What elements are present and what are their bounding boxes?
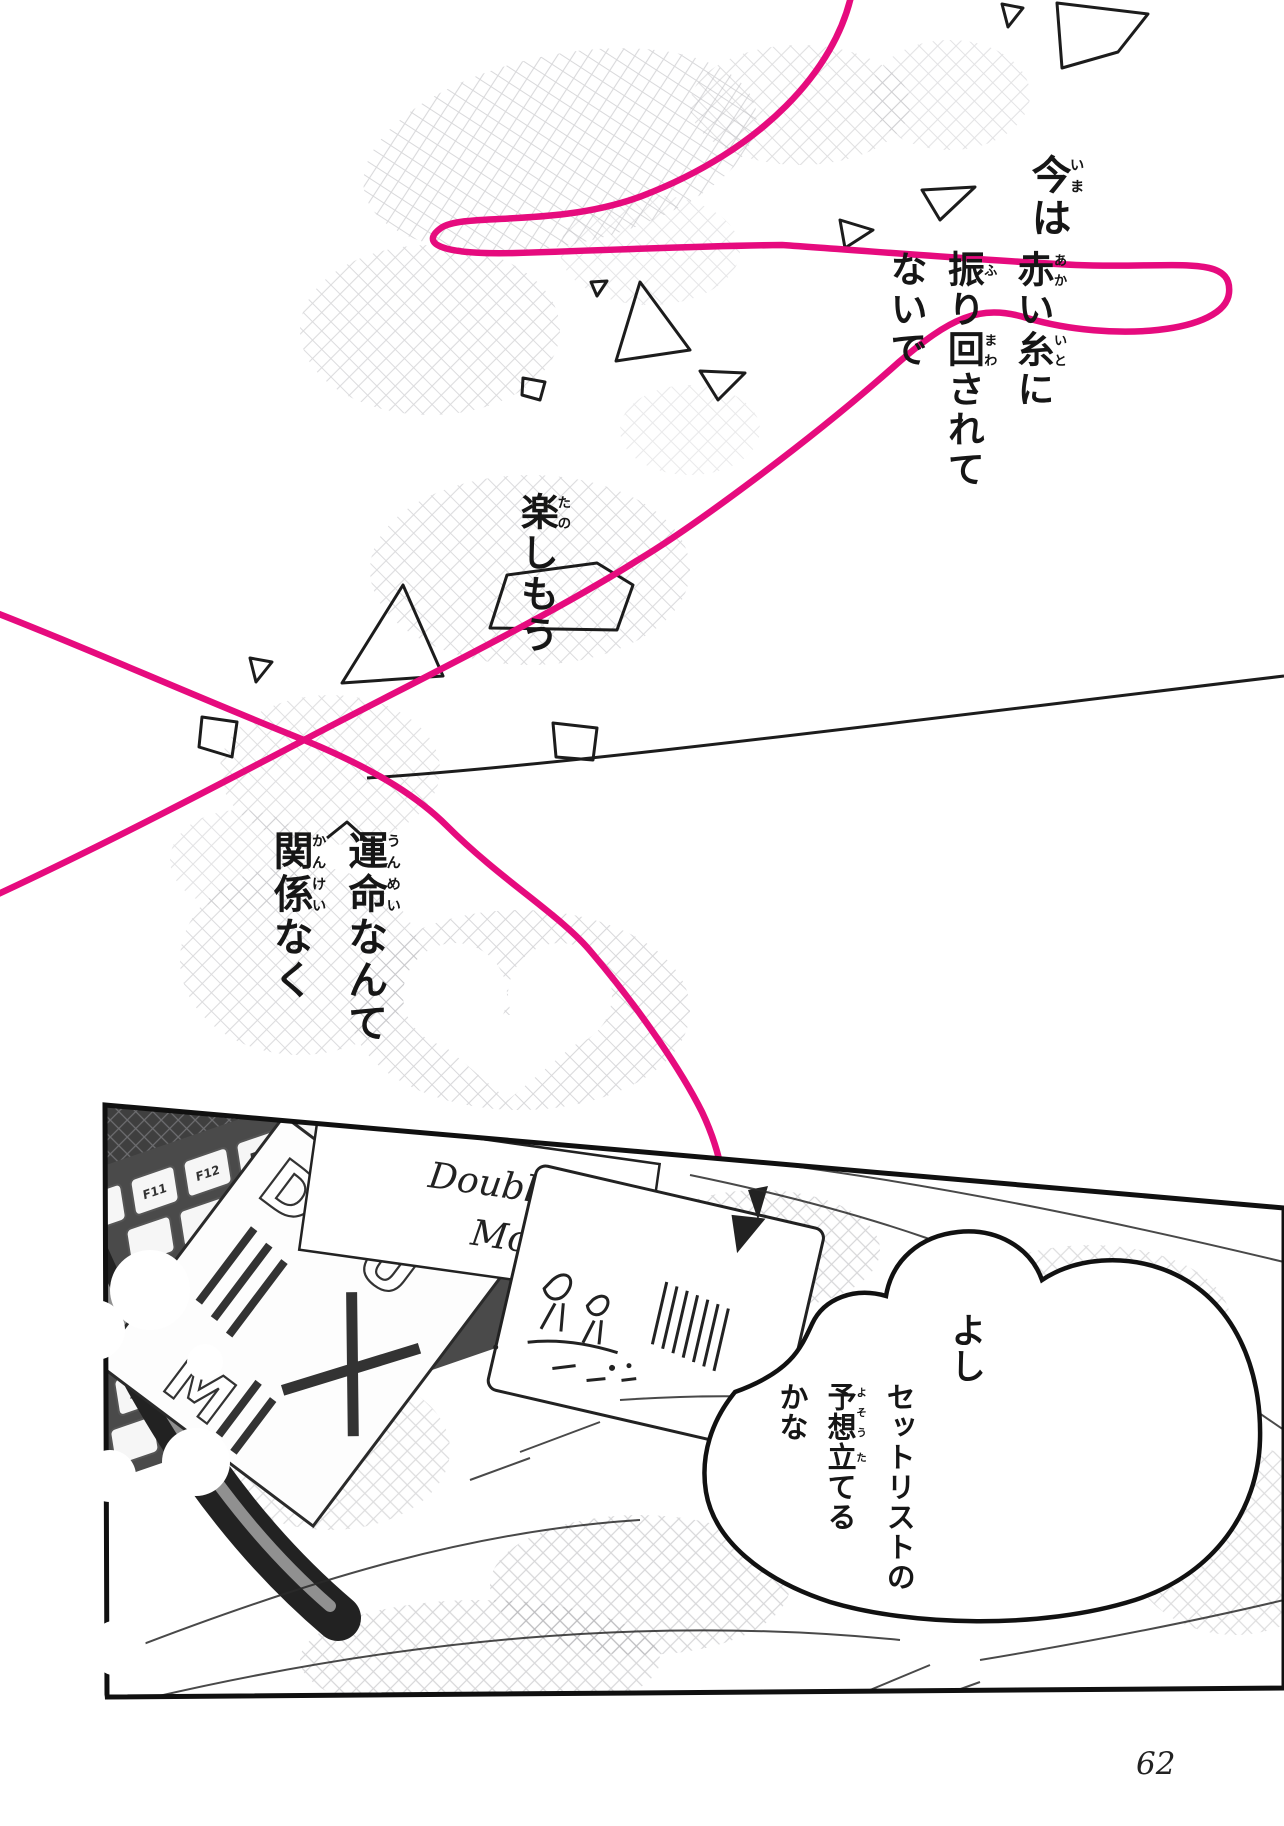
caption-ima-wa-col: 今いまは: [1024, 154, 1084, 240]
horizon-line: [367, 676, 1284, 778]
bubble-text-yoshi: よし: [944, 1312, 984, 1384]
bubble-text-main: セットリストの 予想よそう立たてる かな: [775, 1382, 915, 1592]
caption-naide: ないで: [884, 250, 926, 490]
bubble-line-setlist: セットリストの: [882, 1382, 915, 1592]
page-number: 62: [1136, 1746, 1175, 1782]
bubble-line-kana: かな: [775, 1382, 808, 1592]
caption-furimawasarete: 振ふり回まわされて: [941, 250, 996, 490]
bubble-yoshi-col: よし: [944, 1312, 984, 1384]
caption-unmei-block: 運命うんめいなんて 関係かんけいなく: [266, 830, 400, 1045]
caption-akai-ito-block: 赤あかい糸いとに 振ふり回まわされて ないで: [884, 250, 1066, 490]
caption-tanoshimou: 楽たのしもう: [514, 492, 569, 656]
manga-page: F11 F12 Del Enter Alt Ctrl DOU M: [0, 0, 1284, 1826]
caption-kankei: 関係かんけいなく: [266, 830, 326, 1045]
manga-artwork: F11 F12 Del Enter Alt Ctrl DOU M: [0, 0, 1284, 1826]
caption-unmei: 運命うんめいなんて: [341, 830, 401, 1045]
bubble-line-yosou: 予想よそう立たてる: [823, 1382, 867, 1592]
caption-ima-wa: 今いまは: [1024, 154, 1084, 240]
caption-akai-ito: 赤あかい糸いとに: [1011, 250, 1066, 490]
caption-tanoshimou-col: 楽たのしもう: [514, 492, 569, 656]
